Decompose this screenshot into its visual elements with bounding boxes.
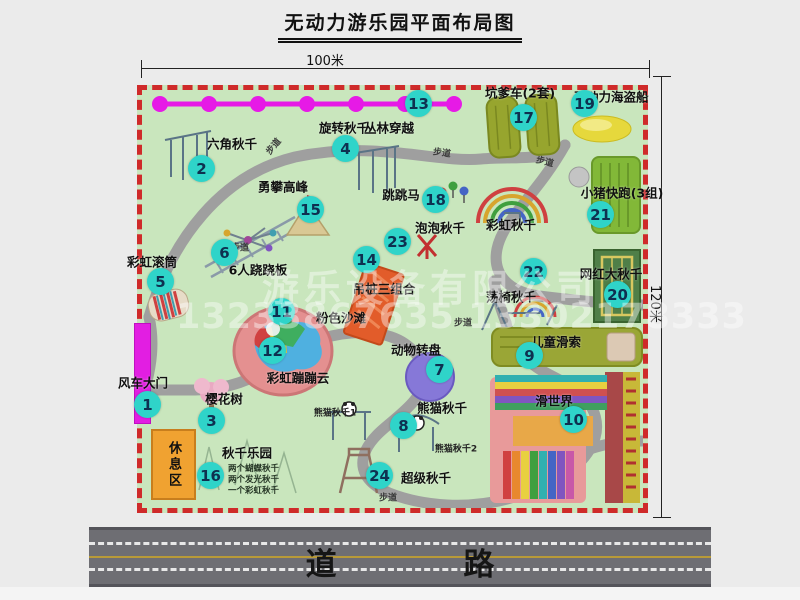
marker-badge-7: 7 (426, 356, 453, 383)
marker-badge-15: 15 (297, 196, 324, 223)
attraction-label-15: 勇攀高峰 (258, 177, 308, 196)
attraction-label-2: 六角秋千 (207, 134, 257, 153)
attraction-label-21: 小猪快跑(3组) (581, 183, 664, 202)
marker-badge-5: 5 (147, 268, 174, 295)
attraction-label-22: 荡椅秋千 (486, 287, 536, 306)
marker-badge-14: 14 (353, 246, 380, 273)
marker-badge-18: 18 (422, 186, 449, 213)
marker-badge-9: 9 (516, 342, 543, 369)
road: 道 路 (89, 527, 711, 587)
map-artwork (142, 90, 643, 508)
note-line: 两个发光秋千 (228, 475, 279, 486)
attraction-label-18: 跳跳马 (382, 185, 420, 204)
attraction-label-23: 泡泡秋千 (415, 218, 465, 237)
marker-badge-6: 6 (211, 239, 238, 266)
marker-badge-2: 2 (188, 155, 215, 182)
marker-badge-19: 19 (571, 90, 598, 117)
note-line: 两个蝴蝶秋千 (228, 464, 279, 475)
attraction-label-13: 丛林穿越 (364, 118, 414, 137)
walkway-label: 步道 (379, 491, 397, 504)
rest-area-label: 休息区 (164, 441, 183, 489)
marker-badge-4: 4 (332, 135, 359, 162)
walkway-label: 步道 (432, 144, 452, 159)
attraction-label-12: 彩虹蹦蹦云 (267, 368, 330, 387)
attraction-label-8: 熊猫秋千 (417, 398, 467, 417)
marker-badge-20: 20 (604, 281, 631, 308)
marker-badge-21: 21 (587, 201, 614, 228)
attraction-label-24: 超级秋千 (401, 468, 451, 487)
marker-badge-13: 13 (405, 90, 432, 117)
attraction-label-16: 秋千乐园 (222, 443, 272, 462)
dimension-label-width: 100米 (0, 50, 650, 69)
attraction-label-3: 樱花树 (205, 389, 243, 408)
marker-badge-12: 12 (259, 337, 286, 364)
marker-badge-24: 24 (366, 462, 393, 489)
marker-badge-17: 17 (510, 104, 537, 131)
rest-area-box: 休息区 (151, 429, 196, 500)
marker-badge-22: 22 (520, 258, 547, 285)
marker-badge-8: 8 (390, 412, 417, 439)
note-line: 一个彩虹秋千 (228, 486, 279, 497)
dimension-label-height: 120米 (647, 285, 666, 323)
panda-swing-1-label: 熊猫秋千1 (314, 406, 356, 419)
swing-paradise-notes: 两个蝴蝶秋千 两个发光秋千 一个彩虹秋千 (228, 464, 279, 497)
attraction-label-6: 6人跷跷板 (229, 260, 288, 279)
walkway-label: 步道 (454, 316, 472, 329)
marker-badge-10: 10 (560, 406, 587, 433)
attraction-label-7: 动物转盘 (391, 340, 441, 359)
rainbow-swing-label: 彩虹秋千 (486, 215, 536, 234)
marker-badge-23: 23 (384, 228, 411, 255)
marker-badge-3: 3 (198, 407, 225, 434)
marker-badge-1: 1 (134, 391, 161, 418)
panda-swing-2-label: 熊猫秋千2 (435, 442, 477, 455)
attraction-label-11: 粉色沙滩 (316, 308, 366, 327)
road-label: 道 路 (89, 539, 711, 584)
page-title-wrap: 无动力游乐园平面布局图 (0, 8, 800, 43)
attraction-label-5: 彩虹滚筒 (127, 252, 177, 271)
attraction-label-20: 网红大秋千 (580, 264, 643, 283)
attraction-label-14: 吊桩三组合 (353, 279, 416, 298)
page-title: 无动力游乐园平面布局图 (278, 8, 521, 43)
marker-badge-16: 16 (197, 462, 224, 489)
attraction-label-17: 坑爹车(2套) (485, 83, 555, 102)
attraction-label-4: 旋转秋千 (319, 118, 369, 137)
bubble-swing-icon (418, 235, 436, 259)
pirate-ship-icon (573, 116, 631, 142)
attraction-label-1: 风车大门 (118, 373, 168, 392)
page-footer-strip (0, 587, 800, 600)
marker-badge-11: 11 (268, 298, 295, 325)
